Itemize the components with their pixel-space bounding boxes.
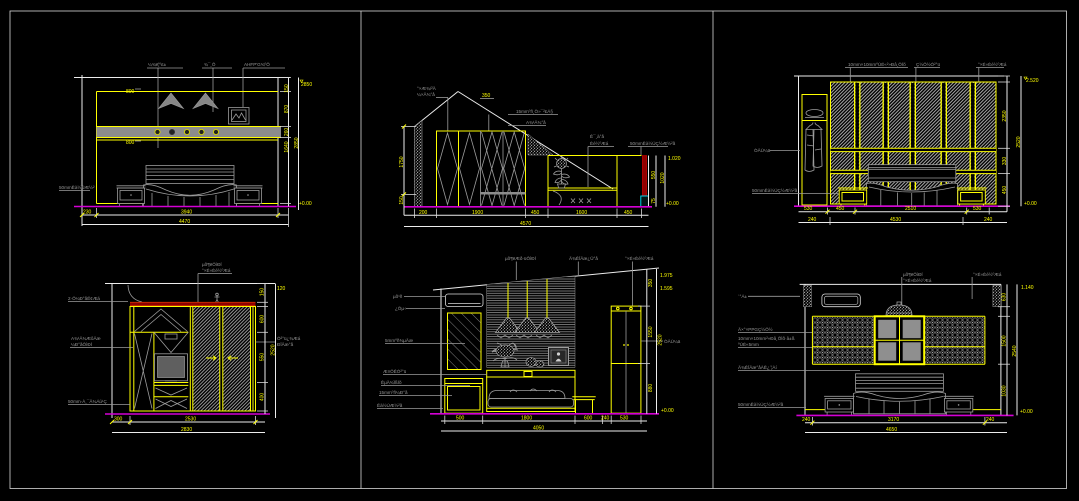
- svg-text:50mmËà½ÚÇ½Æ½²ã: 50mmËà½ÚÇ½Æ½²ã: [752, 187, 798, 193]
- svg-text:µõ¹ñ: µõ¹ñ: [393, 294, 403, 299]
- svg-text:2530: 2530: [185, 417, 196, 423]
- svg-text:µõ¶¥ÔìÐÍ: µõ¶¥ÔìÐÍ: [202, 261, 222, 267]
- svg-text:µõ¶¥ÔìÐÍ: µõ¶¥ÔìÐÍ: [903, 271, 923, 277]
- svg-text:10mm×10mm²»Ðâ¸ÖÌõ·â±ß: 10mm×10mm²»Ðâ¸ÖÌõ·â±ß: [738, 335, 795, 342]
- svg-text:2.520: 2.520: [1026, 78, 1039, 84]
- svg-text:1900: 1900: [472, 210, 483, 216]
- svg-text:260: 260: [284, 128, 290, 137]
- svg-text:ÊµÄ¾ÏßÌõ: ÊµÄ¾ÏßÌõ: [381, 378, 402, 385]
- svg-text:2350: 2350: [1002, 110, 1008, 121]
- svg-text:530: 530: [973, 206, 982, 212]
- svg-text:1550: 1550: [648, 326, 654, 337]
- svg-text:1.975: 1.975: [660, 273, 673, 279]
- svg-text:¼Ð°åÔìÐÍ: ¼Ð°åÔìÐÍ: [71, 341, 93, 347]
- svg-text:¿Õµ÷: ¿Õµ÷: [395, 305, 407, 311]
- svg-text:240: 240: [986, 417, 995, 423]
- svg-text:A¾¹Ä¾ÆôÃæ: A¾¹Ä¾ÆôÃæ: [71, 335, 101, 341]
- svg-text:550: 550: [651, 171, 657, 180]
- svg-text:2830: 2830: [181, 427, 192, 433]
- svg-text:50mmËà½ÚÆ½²: 50mmËà½ÚÆ½²: [59, 184, 95, 190]
- svg-text:Æ¤ÖÊÓ²°ü: Æ¤ÖÊÓ²°ü: [383, 367, 407, 374]
- svg-text:Ê¯¸à°å: Ê¯¸à°å: [590, 132, 605, 140]
- svg-text:450: 450: [836, 206, 845, 212]
- svg-text:870: 870: [284, 105, 290, 114]
- svg-text:¼¾¥¦º£±: ¼¾¥¦º£±: [148, 62, 167, 67]
- svg-text:4570: 4570: [520, 221, 531, 227]
- svg-text:°×É«Èé½ºÆá: °×É«Èé½ºÆá: [973, 271, 1002, 277]
- svg-text:230: 230: [83, 210, 92, 216]
- svg-text:150: 150: [284, 84, 290, 93]
- svg-text:2850: 2850: [294, 137, 300, 148]
- svg-text:°×É«Èé½ºÆá: °×É«Èé½ºÆá: [625, 255, 654, 261]
- svg-text:3170: 3170: [888, 417, 899, 423]
- svg-text:50mm·À¸¯Ä¾Áú¹Ç: 50mm·À¸¯Ä¾Áú¹Ç: [68, 398, 107, 405]
- svg-text:240: 240: [984, 217, 993, 223]
- svg-text:450: 450: [531, 210, 540, 216]
- svg-text:400: 400: [260, 393, 266, 402]
- svg-text:240: 240: [802, 417, 811, 423]
- svg-text:4050: 4050: [533, 426, 544, 432]
- svg-text:A¾¹Ä¾°å: A¾¹Ä¾°å: [526, 119, 546, 125]
- svg-text:°×É«Èé½ºÆá: °×É«Èé½ºÆá: [903, 277, 932, 283]
- svg-text:1.020: 1.020: [668, 156, 681, 162]
- svg-text:4530: 4530: [890, 217, 901, 223]
- svg-text:AHFP'G¾ºÖ: AHFP'G¾ºÖ: [244, 61, 270, 67]
- svg-text:ÒÂÙ¼ä: ÒÂÙ¼ä: [664, 338, 681, 344]
- svg-text:Ä¾ÊÎÃæ¿Û°å: Ä¾ÊÎÃæ¿Û°å: [569, 254, 598, 261]
- svg-text:240: 240: [601, 416, 610, 422]
- svg-text:2850: 2850: [301, 82, 312, 88]
- svg-text:330: 330: [1002, 157, 1008, 166]
- svg-text:1750: 1750: [399, 156, 405, 167]
- svg-text:5mmºñ¾µÃæ: 5mmºñ¾µÃæ: [385, 337, 413, 343]
- svg-text:Ëà½ÚÆ½²ã: Ëà½ÚÆ½²ã: [377, 402, 403, 408]
- svg-text:+0.00: +0.00: [299, 201, 312, 207]
- svg-text:240: 240: [808, 217, 817, 223]
- svg-text:°×Æ¾/²Ä: °×Æ¾/²Ä: [417, 85, 437, 91]
- svg-text:2510: 2510: [905, 206, 916, 212]
- svg-text:Ã×°×PPGÇ½Ö½: Ã×°×PPGÇ½Ö½: [738, 326, 773, 332]
- svg-text:600: 600: [260, 315, 266, 324]
- svg-text:50mmËà½ÚÇ½Æ½²ã: 50mmËà½ÚÇ½Æ½²ã: [738, 401, 784, 407]
- svg-text:450: 450: [624, 210, 633, 216]
- svg-text:880: 880: [648, 384, 654, 393]
- svg-text:°×É«Èé½ºÆá: °×É«Èé½ºÆá: [202, 267, 231, 273]
- svg-text:15mmºñ¼Ð°å: 15mmºñ¼Ð°å: [379, 389, 408, 395]
- svg-text:530: 530: [804, 206, 813, 212]
- svg-text:50mmËà½ÚÇ½Æ½²ã: 50mmËà½ÚÇ½Æ½²ã: [630, 140, 676, 146]
- svg-text:2540: 2540: [1012, 345, 1018, 356]
- svg-text:10mm×10mmºÚÉ«²»Ðâ¸ÖÌõ: 10mm×10mmºÚÉ«²»Ðâ¸ÖÌõ: [848, 61, 906, 68]
- svg-text:2520: 2520: [271, 344, 277, 355]
- svg-text:200: 200: [419, 210, 428, 216]
- svg-text:3940: 3940: [181, 210, 192, 216]
- svg-text:Ó²°ü¿¾Æá: Ó²°ü¿¾Æá: [277, 335, 301, 341]
- svg-text:800: 800: [126, 89, 135, 95]
- svg-text:1500: 1500: [1002, 335, 1008, 346]
- svg-text:800: 800: [126, 140, 135, 146]
- svg-text:ÐÎÃæ°å: ÐÎÃæ°å: [277, 341, 294, 347]
- svg-text:530: 530: [620, 416, 629, 422]
- svg-text:ÒÂÙ¼ä: ÒÂÙ¼ä: [754, 147, 771, 153]
- svg-text:550: 550: [260, 353, 266, 362]
- svg-text:300: 300: [114, 417, 123, 423]
- svg-text:450: 450: [1002, 186, 1008, 195]
- svg-text:120: 120: [277, 286, 286, 292]
- svg-text:+0.00: +0.00: [666, 201, 679, 207]
- svg-text:2520: 2520: [1016, 136, 1022, 147]
- svg-text:150: 150: [260, 288, 266, 297]
- svg-text:Ä¾ÊÎÃæ°åÀ­Ë¿´¦Àí: Ä¾ÊÎÃæ°åÀ­Ë¿´¦Àí: [738, 363, 777, 370]
- svg-text:ºÚÉ«5mm: ºÚÉ«5mm: [738, 341, 759, 347]
- svg-text:+0.00: +0.00: [1020, 409, 1033, 415]
- svg-text:75: 75: [651, 198, 657, 204]
- svg-text:630: 630: [1002, 293, 1008, 302]
- svg-text:1640: 1640: [284, 141, 290, 152]
- svg-text:500: 500: [456, 416, 465, 422]
- svg-text:15mmºñ¸Ö»¯²£Á§: 15mmºñ¸Ö»¯²£Á§: [516, 108, 553, 115]
- svg-text:2520: 2520: [658, 334, 664, 345]
- svg-text:+0.00: +0.00: [661, 408, 674, 414]
- svg-text:150: 150: [399, 196, 405, 205]
- svg-text:Ç½Ö½Ó²°ü: Ç½Ö½Ó²°ü: [916, 61, 940, 67]
- svg-text:Èé½ºÆá: Èé½ºÆá: [590, 140, 609, 146]
- svg-text:+0.00: +0.00: [1024, 201, 1037, 207]
- svg-text:°×É«Èé½ºÆá: °×É«Èé½ºÆá: [978, 61, 1007, 67]
- svg-text:4650: 4650: [886, 427, 897, 433]
- svg-text:¾¯¸Õ: ¾¯¸Õ: [204, 61, 216, 68]
- svg-text:´°Á±: ´°Á±: [738, 293, 747, 299]
- svg-text:350: 350: [648, 279, 654, 288]
- svg-text:2·Ö¼Ð°åË¢Æá: 2·Ö¼Ð°åË¢Æá: [68, 295, 100, 301]
- svg-text:1800: 1800: [521, 416, 532, 422]
- svg-text:1.595: 1.595: [660, 286, 673, 292]
- svg-text:1030: 1030: [1002, 385, 1008, 396]
- svg-text:1600: 1600: [576, 210, 587, 216]
- svg-text:µõ¶¥Æð·üÔìÐÍ: µõ¶¥Æð·üÔìÐÍ: [505, 255, 537, 261]
- svg-text:600: 600: [584, 416, 593, 422]
- svg-text:¼×Ä¾°å: ¼×Ä¾°å: [417, 91, 435, 97]
- svg-text:4470: 4470: [179, 219, 190, 225]
- svg-text:1.140: 1.140: [1021, 285, 1034, 291]
